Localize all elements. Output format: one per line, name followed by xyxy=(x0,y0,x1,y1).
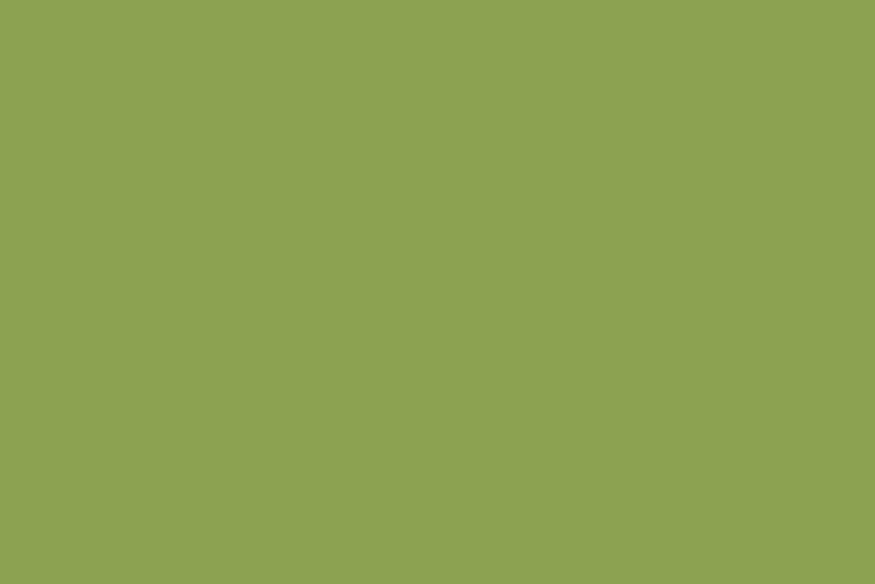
site-plan-canvas xyxy=(0,0,875,584)
site-plan-rendering xyxy=(0,0,875,584)
